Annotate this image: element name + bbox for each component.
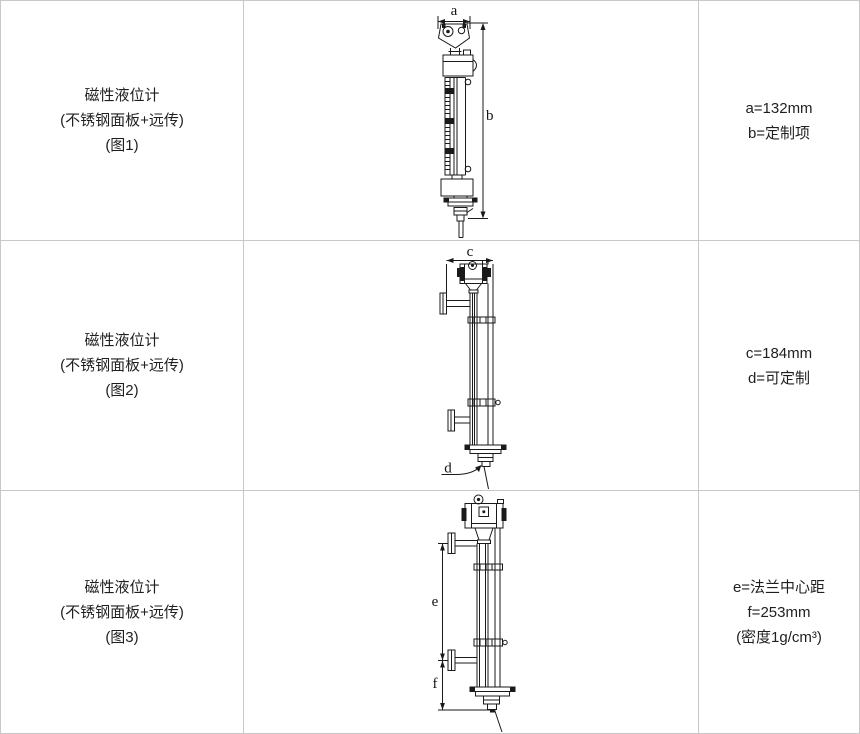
dim-label-b: b bbox=[486, 108, 494, 124]
product-title: 磁性液位计 bbox=[60, 575, 184, 600]
level-gauge-figure-2-drawing: c d bbox=[244, 241, 698, 490]
spec-line: d=可定制 bbox=[746, 366, 812, 391]
product-label-cell-3: 磁性液位计 (不锈钢面板+远传) (图3) bbox=[1, 491, 244, 733]
spec-cell-2: c=184mm d=可定制 bbox=[699, 241, 859, 491]
figure-cell-2: c d bbox=[244, 241, 699, 491]
dim-label-c: c bbox=[467, 244, 474, 260]
level-gauge-figure-3-drawing: e f bbox=[244, 491, 698, 733]
product-subtitle: (不锈钢面板+远传) bbox=[60, 353, 184, 378]
dim-label-e: e bbox=[432, 594, 439, 610]
figure-cell-1: a b bbox=[244, 1, 699, 241]
product-subtitle: (不锈钢面板+远传) bbox=[60, 108, 184, 133]
dim-label-a: a bbox=[451, 3, 458, 19]
spec-cell-3: e=法兰中心距 f=253mm (密度1g/cm³) bbox=[699, 491, 859, 733]
product-label-block: 磁性液位计 (不锈钢面板+远传) (图2) bbox=[60, 328, 184, 403]
product-title: 磁性液位计 bbox=[60, 328, 184, 353]
product-label-cell-2: 磁性液位计 (不锈钢面板+远传) (图2) bbox=[1, 241, 244, 491]
product-spec-table: 磁性液位计 (不锈钢面板+远传) (图1) bbox=[0, 0, 860, 734]
spec-line: a=132mm bbox=[745, 96, 812, 121]
spec-line: e=法兰中心距 bbox=[733, 575, 825, 600]
spec-line: b=定制项 bbox=[745, 121, 812, 146]
spec-line: f=253mm bbox=[733, 600, 825, 625]
spec-line: (密度1g/cm³) bbox=[733, 625, 825, 650]
product-label-cell-1: 磁性液位计 (不锈钢面板+远传) (图1) bbox=[1, 1, 244, 241]
level-gauge-figure-1-drawing: a b bbox=[244, 1, 698, 240]
spec-line: c=184mm bbox=[746, 341, 812, 366]
product-figure-number: (图2) bbox=[60, 378, 184, 403]
product-subtitle: (不锈钢面板+远传) bbox=[60, 600, 184, 625]
product-label-block: 磁性液位计 (不锈钢面板+远传) (图1) bbox=[60, 83, 184, 158]
spec-cell-1: a=132mm b=定制项 bbox=[699, 1, 859, 241]
dim-label-f: f bbox=[433, 676, 438, 692]
product-figure-number: (图3) bbox=[60, 625, 184, 650]
spec-block: a=132mm b=定制项 bbox=[745, 96, 812, 146]
product-figure-number: (图1) bbox=[60, 133, 184, 158]
product-label-block: 磁性液位计 (不锈钢面板+远传) (图3) bbox=[60, 575, 184, 650]
spec-block: c=184mm d=可定制 bbox=[746, 341, 812, 391]
dim-label-d: d bbox=[444, 461, 452, 477]
spec-block: e=法兰中心距 f=253mm (密度1g/cm³) bbox=[733, 575, 825, 650]
figure-cell-3: e f bbox=[244, 491, 699, 733]
product-title: 磁性液位计 bbox=[60, 83, 184, 108]
